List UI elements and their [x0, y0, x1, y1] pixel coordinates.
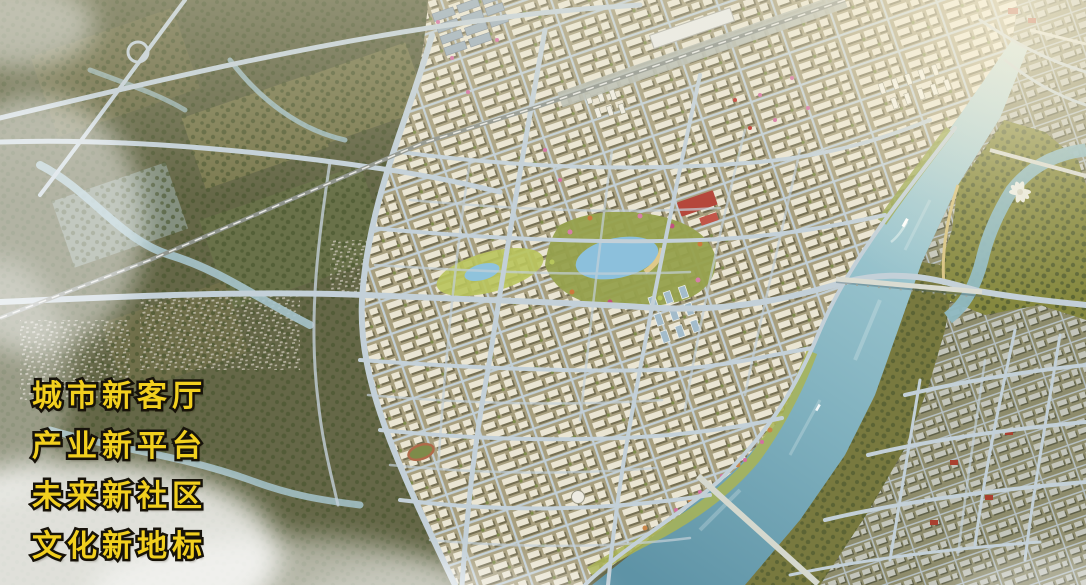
- slogan-line-3: 未来新社区: [32, 472, 207, 522]
- slogan-overlay: 城市新客厅 产业新平台 未来新社区 文化新地标: [32, 372, 207, 572]
- aerial-city-rendering: 城市新客厅 产业新平台 未来新社区 文化新地标: [0, 0, 1086, 585]
- dome-hall: [572, 491, 585, 504]
- slogan-line-4: 文化新地标: [32, 522, 207, 572]
- slogan-line-1: 城市新客厅: [32, 372, 207, 422]
- slogan-line-2: 产业新平台: [32, 422, 207, 472]
